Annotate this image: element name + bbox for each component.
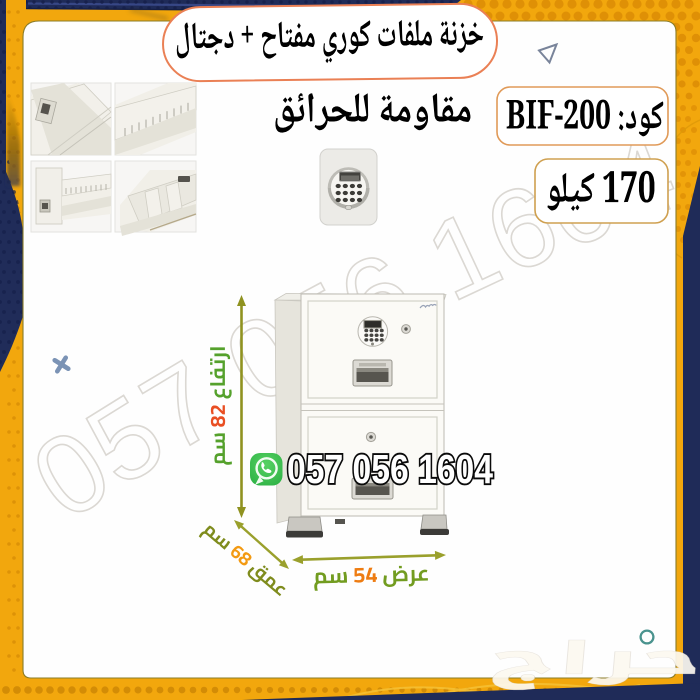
svg-text:057 056 1604: 057 056 1604 [287, 446, 493, 492]
